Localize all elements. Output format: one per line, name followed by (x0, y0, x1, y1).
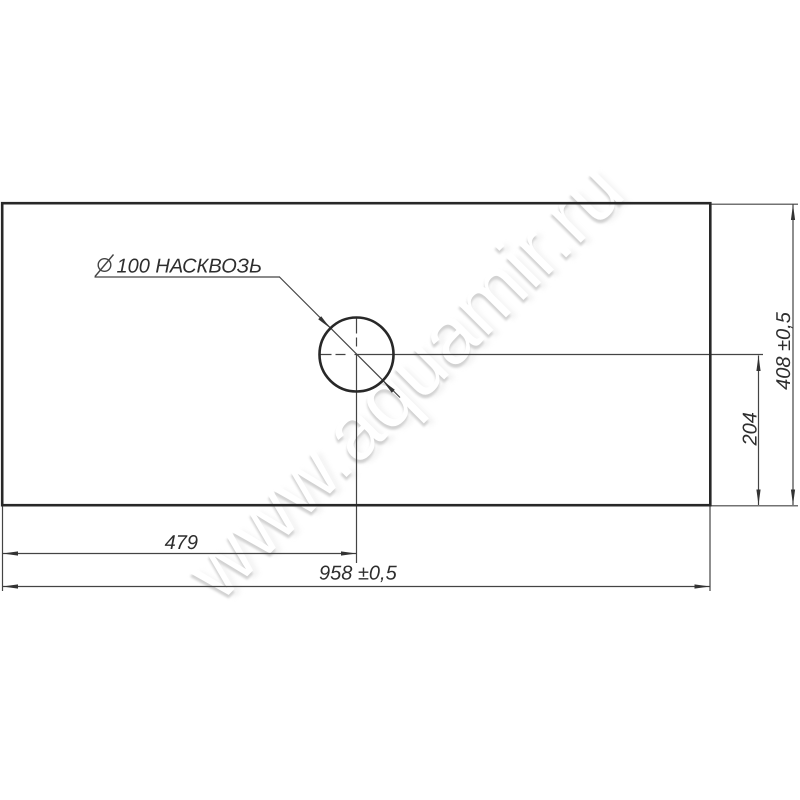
svg-text:100 НАСКВОЗЬ: 100 НАСКВОЗЬ (117, 256, 263, 278)
svg-text:479: 479 (165, 532, 198, 554)
svg-text:958 ±0,5: 958 ±0,5 (319, 563, 398, 585)
svg-text:408 ±0,5: 408 ±0,5 (773, 311, 795, 390)
svg-text:204: 204 (740, 412, 762, 446)
